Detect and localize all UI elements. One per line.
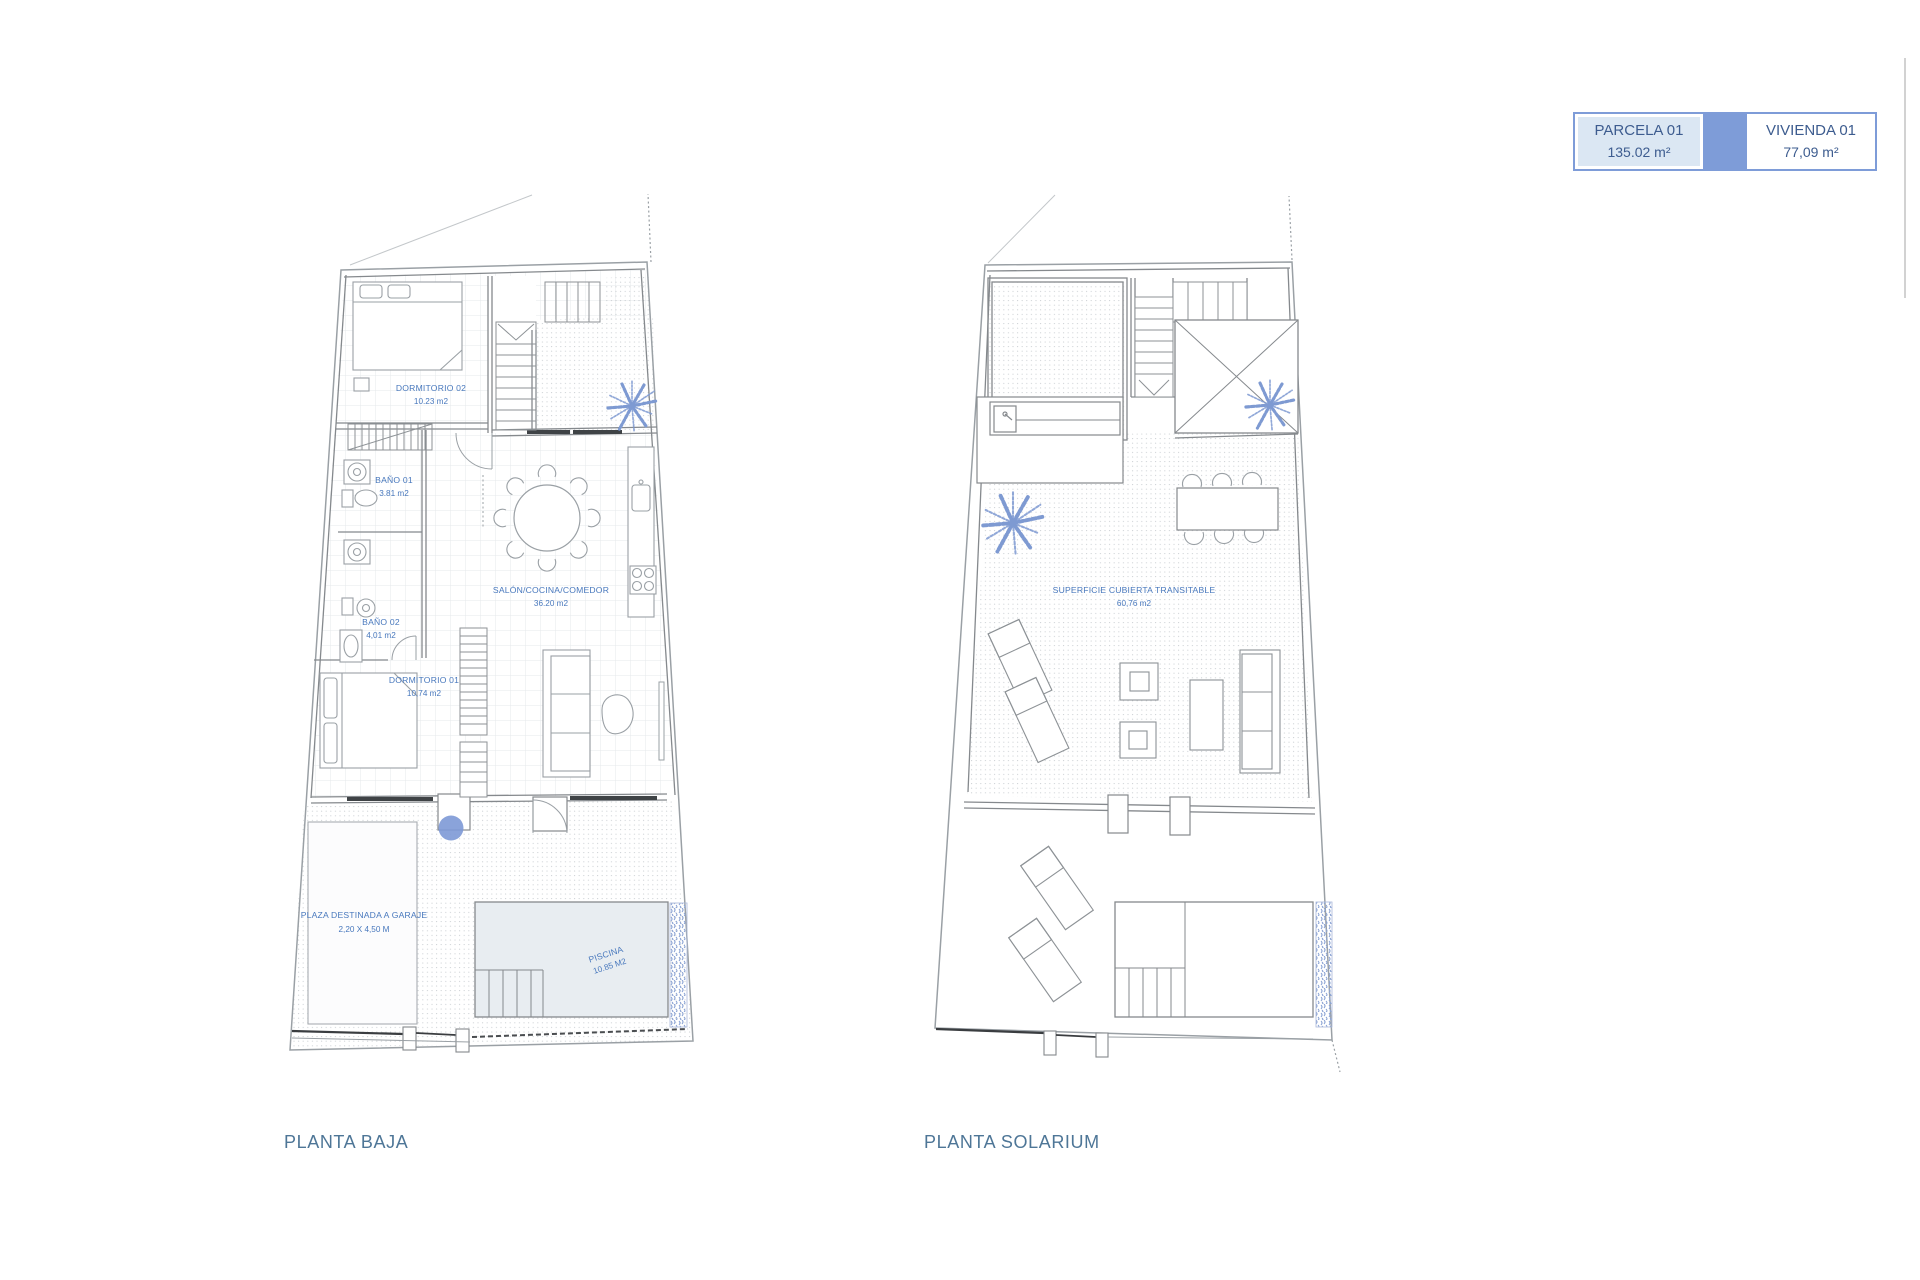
dormitorio02-label: DORMITORIO 02 (396, 383, 466, 393)
legend-vivienda-cell: VIVIENDA 01 77,09 m² (1750, 117, 1872, 166)
tree-icon (439, 816, 464, 841)
salon-label: SALÓN/COCINA/COMEDOR (493, 585, 609, 595)
coffee-table (602, 695, 633, 734)
vegetation-strip (670, 903, 687, 1027)
salon-area-label: 36.20 m2 (534, 599, 569, 608)
boundary-tick (1289, 196, 1292, 260)
pergola-post (1170, 797, 1190, 835)
cubierta-area-label: 60,76 m2 (1117, 599, 1152, 608)
garage-space: PLAZA DESTINADA A GARAJE 2,20 X 4,50 M (301, 822, 428, 1024)
legend-box: PARCELA 01 135.02 m² VIVIENDA 01 77,09 m… (1573, 112, 1877, 171)
planta-solarium-title: PLANTA SOLARIUM (924, 1132, 1100, 1153)
parcela-title: PARCELA 01 (1595, 120, 1684, 143)
bed-dormitorio-01 (320, 673, 417, 768)
bano02-label: BAÑO 02 (362, 617, 400, 627)
pool-outline (1115, 902, 1313, 1017)
legend-parcela-cell: PARCELA 01 135.02 m² (1578, 117, 1700, 166)
skylight-opening (1175, 320, 1298, 433)
floorplan-sheet: PARCELA 01 135.02 m² VIVIENDA 01 77,09 m… (0, 0, 1920, 1280)
neighbor-boundary-line (350, 195, 532, 265)
garage-area-label: 2,20 X 4,50 M (339, 925, 390, 934)
neighbor-boundary-line (988, 195, 1055, 263)
parcela-area: 135.02 m² (1607, 142, 1670, 163)
sofa (1240, 650, 1280, 773)
pergola-post (1108, 795, 1128, 833)
sheet-edge-line (1904, 58, 1906, 298)
bano01-area-label: 3.81 m2 (379, 489, 409, 498)
vivienda-area: 77,09 m² (1783, 142, 1838, 163)
porch-post (533, 797, 567, 831)
sofa (543, 650, 590, 777)
planta-baja-drawing: PLAZA DESTINADA A GARAJE 2,20 X 4,50 M P… (270, 180, 730, 1080)
wardrobe (460, 628, 487, 797)
pool: PISCINA 10.85 M2 (475, 902, 668, 1017)
dormitorio01-area-label: 10,74 m2 (407, 689, 442, 698)
boundary-tick-bottom (1332, 1040, 1340, 1072)
bano02-area-label: 4,01 m2 (366, 631, 396, 640)
planta-solarium-drawing: SUPERFICIE CUBIERTA TRANSITABLE 60,76 m2 (920, 180, 1380, 1080)
rooftop-bar (977, 397, 1123, 483)
boundary-tick (648, 194, 651, 262)
cubierta-label: SUPERFICIE CUBIERTA TRANSITABLE (1053, 585, 1216, 595)
legend-divider (1703, 114, 1747, 169)
dormitorio02-area-label: 10.23 m2 (414, 397, 449, 406)
kitchen-counter (628, 447, 656, 617)
dormitorio01-label: DORMITORIO 01 (389, 675, 459, 685)
bano01-label: BAÑO 01 (375, 475, 413, 485)
planta-baja-title: PLANTA BAJA (284, 1132, 408, 1153)
tv-unit (659, 682, 664, 760)
sun-lounger (1009, 918, 1082, 1001)
sun-lounger (1021, 846, 1094, 929)
vegetation-strip (1316, 902, 1332, 1027)
garage-label: PLAZA DESTINADA A GARAJE (301, 910, 428, 920)
vivienda-title: VIVIENDA 01 (1766, 120, 1856, 143)
